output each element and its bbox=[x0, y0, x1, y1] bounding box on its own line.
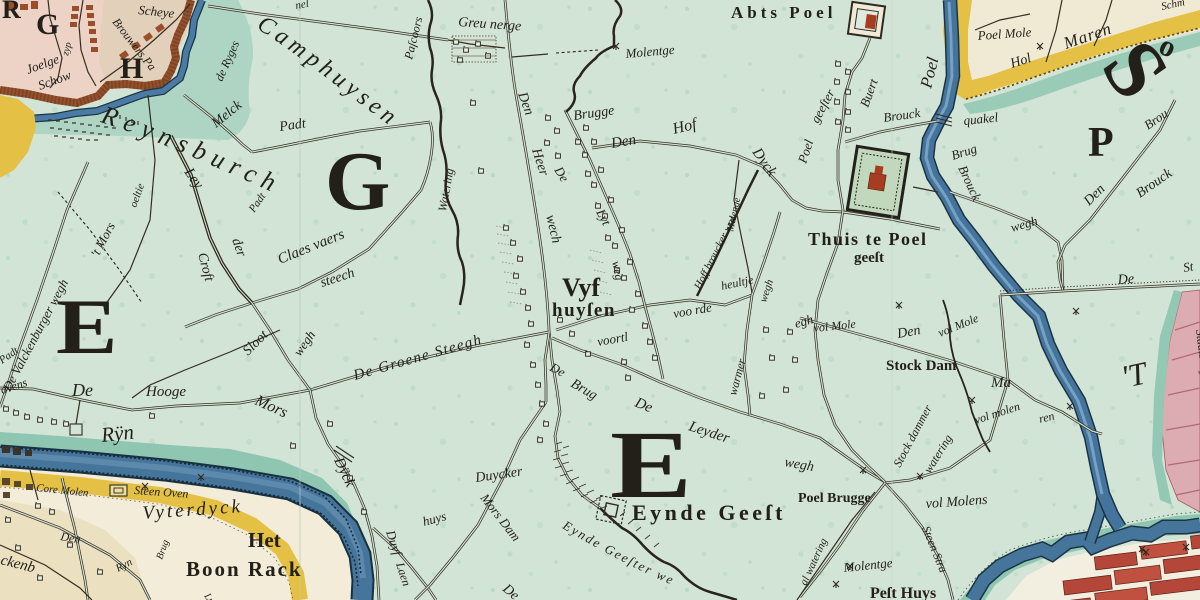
svg-text:G: G bbox=[325, 135, 390, 228]
svg-text:Boon Rack: Boon Rack bbox=[186, 557, 303, 581]
svg-text:De: De bbox=[1116, 272, 1134, 288]
svg-text:G: G bbox=[36, 8, 59, 41]
svg-text:P: P bbox=[1088, 120, 1114, 166]
svg-text:geeſt: geeſt bbox=[854, 250, 884, 266]
svg-text:Vyf: Vyf bbox=[562, 273, 600, 302]
svg-text:Hooge: Hooge bbox=[145, 384, 186, 400]
svg-text:Thuis te Poel: Thuis te Poel bbox=[808, 229, 928, 249]
svg-text:Het: Het bbox=[248, 528, 281, 552]
svg-text:Ma: Ma bbox=[990, 375, 1011, 391]
svg-text:Rÿn: Rÿn bbox=[99, 420, 135, 447]
svg-text:R: R bbox=[2, 0, 21, 24]
svg-text:Abts Poel: Abts Poel bbox=[731, 3, 836, 22]
svg-text:huyſen: huyſen bbox=[552, 300, 616, 321]
svg-text:Peſt Huys: Peſt Huys bbox=[870, 585, 936, 600]
svg-text:Eynde Geeſt: Eynde Geeſt bbox=[632, 500, 786, 525]
svg-text:Stock Dam: Stock Dam bbox=[886, 358, 957, 374]
svg-text:E: E bbox=[56, 284, 117, 370]
svg-text:Poel Brugge: Poel Brugge bbox=[798, 491, 871, 506]
svg-text:De: De bbox=[71, 380, 93, 400]
